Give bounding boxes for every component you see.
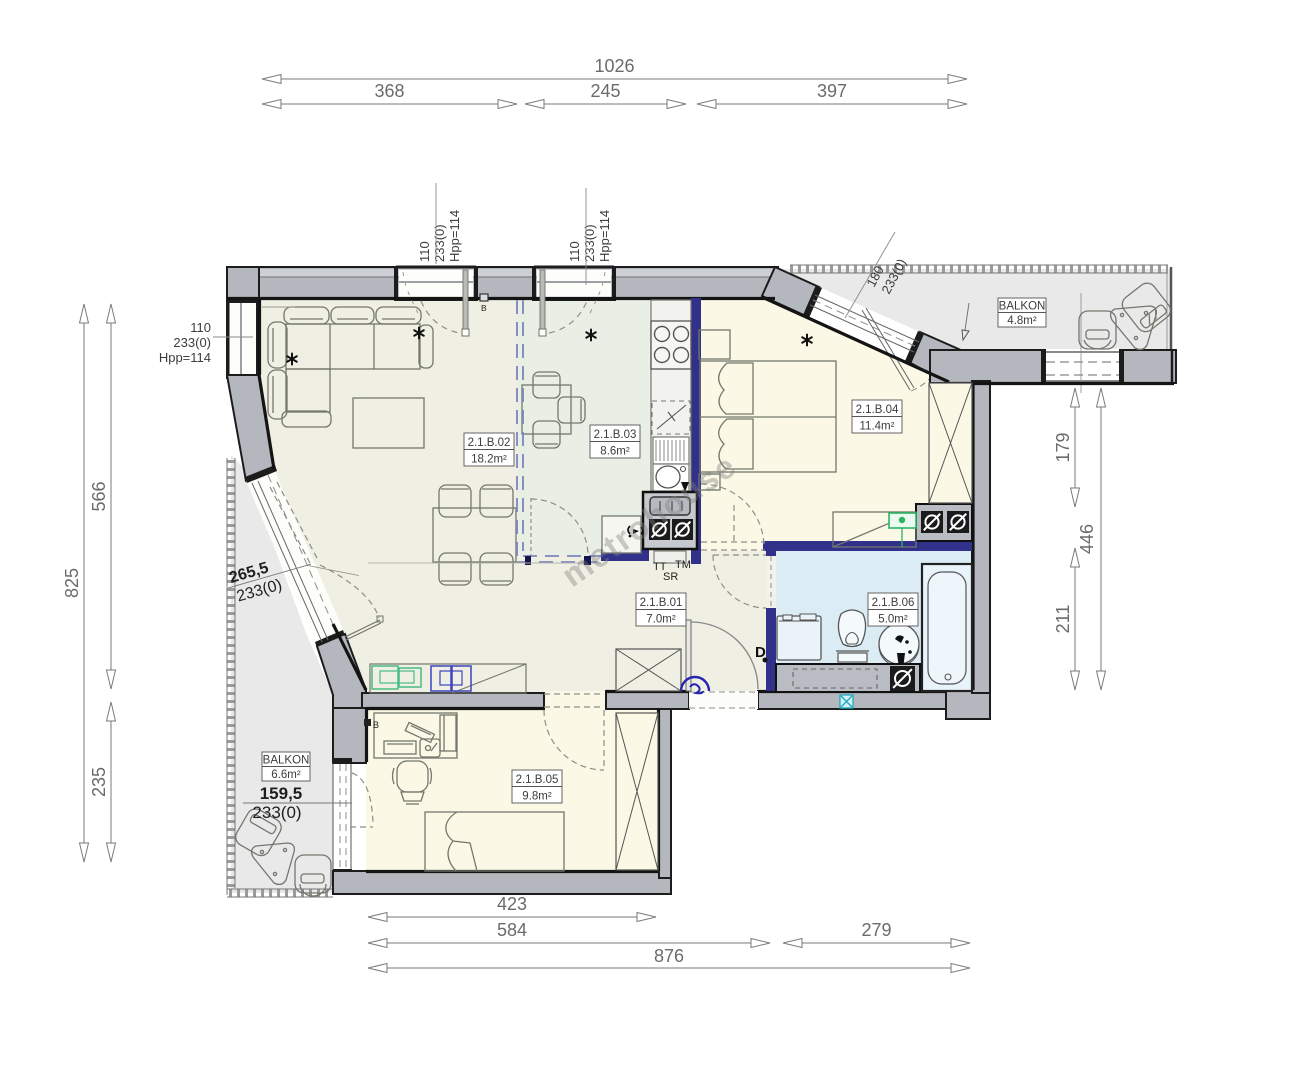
svg-text:110: 110 — [190, 320, 211, 335]
svg-text:7.0m²: 7.0m² — [646, 614, 676, 626]
svg-text:TM: TM — [675, 559, 691, 571]
svg-text:BALKON: BALKON — [263, 755, 310, 767]
svg-text:159,5: 159,5 — [260, 784, 303, 803]
svg-text:233(0): 233(0) — [582, 224, 597, 262]
svg-text:2.1.B.05: 2.1.B.05 — [516, 774, 559, 786]
svg-text:233(0): 233(0) — [252, 803, 301, 822]
svg-text:233(0): 233(0) — [432, 224, 447, 262]
svg-text:110: 110 — [417, 241, 432, 262]
svg-text:SR: SR — [663, 571, 678, 583]
svg-text:235: 235 — [89, 767, 109, 797]
svg-text:9.8m²: 9.8m² — [522, 791, 552, 803]
svg-text:211: 211 — [1053, 605, 1073, 634]
svg-text:BALKON: BALKON — [999, 301, 1046, 313]
svg-text:110: 110 — [567, 241, 582, 262]
svg-text:279: 279 — [861, 920, 891, 940]
svg-text:2.1.B.02: 2.1.B.02 — [468, 437, 511, 449]
svg-text:B: B — [373, 720, 379, 730]
svg-text:2.1.B.03: 2.1.B.03 — [594, 429, 637, 441]
svg-text:18.2m²: 18.2m² — [471, 454, 507, 466]
svg-text:825: 825 — [62, 568, 82, 598]
svg-text:6.6m²: 6.6m² — [271, 769, 301, 781]
svg-text:Hpp=114: Hpp=114 — [159, 350, 211, 365]
svg-text:2.1.B.06: 2.1.B.06 — [872, 597, 915, 609]
svg-text:397: 397 — [817, 81, 847, 101]
svg-text:4.8m²: 4.8m² — [1007, 315, 1037, 327]
svg-text:566: 566 — [89, 481, 109, 511]
svg-text:233(0): 233(0) — [173, 335, 211, 350]
svg-text:423: 423 — [497, 894, 527, 914]
svg-text:Hpp=114: Hpp=114 — [447, 210, 462, 262]
svg-text:179: 179 — [1053, 432, 1073, 462]
svg-text:584: 584 — [497, 920, 527, 940]
svg-text:B: B — [481, 303, 487, 313]
svg-text:2.1.B.04: 2.1.B.04 — [856, 404, 899, 416]
svg-text:446: 446 — [1077, 524, 1097, 554]
svg-text:876: 876 — [654, 946, 684, 966]
svg-text:1026: 1026 — [594, 56, 634, 76]
svg-text:368: 368 — [374, 81, 404, 101]
svg-text:2.1.B.01: 2.1.B.01 — [640, 597, 683, 609]
svg-text:5.0m²: 5.0m² — [878, 614, 908, 626]
svg-text:Hpp=114: Hpp=114 — [597, 210, 612, 262]
svg-text:8.6m²: 8.6m² — [600, 446, 630, 458]
svg-text:245: 245 — [590, 81, 620, 101]
svg-text:11.4m²: 11.4m² — [860, 421, 895, 433]
